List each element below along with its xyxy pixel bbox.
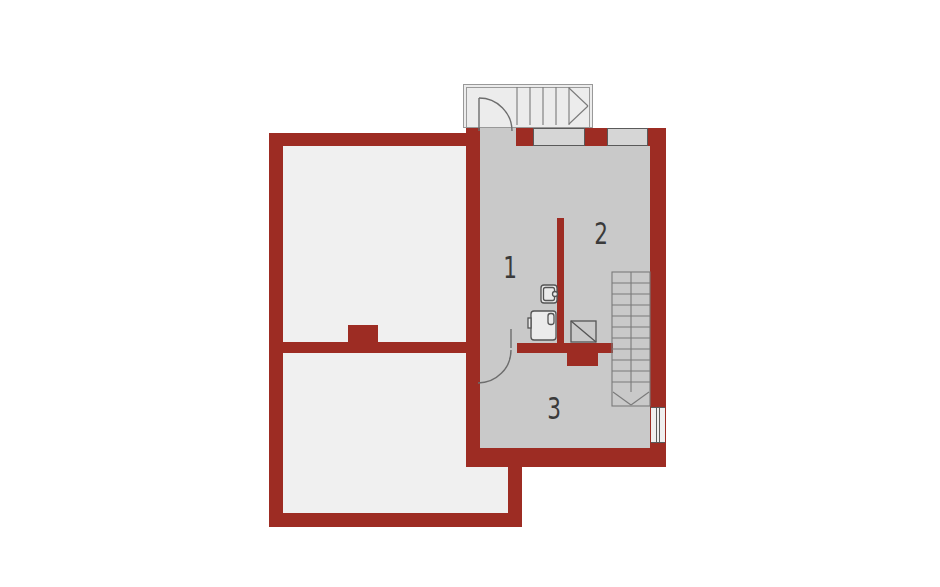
room-upper-left-floor xyxy=(283,146,466,342)
room-lower-left-floor-extension xyxy=(466,467,508,513)
wall-interior-horizontal xyxy=(517,343,613,353)
wall-interior-vertical xyxy=(557,218,564,345)
wall-top-pier-2 xyxy=(585,128,607,146)
wall-top-right-corner xyxy=(648,128,666,146)
room1-label: 1 xyxy=(501,253,518,283)
wall-lower-right-left-wing xyxy=(508,467,522,513)
wall-main-left xyxy=(466,128,480,448)
floor-plan-canvas: 1 2 3 xyxy=(0,0,940,587)
window-right-frame xyxy=(656,408,660,442)
window-top-1 xyxy=(533,128,585,146)
entry-landing xyxy=(463,84,593,128)
room2-label: 2 xyxy=(592,219,609,249)
entry-landing-railing xyxy=(466,87,590,127)
wall-right-outer xyxy=(650,146,666,448)
wall-left-outer xyxy=(269,133,283,527)
wall-top-left-wing xyxy=(269,133,466,146)
room-lower-left-floor xyxy=(283,353,466,513)
chimney-main xyxy=(567,353,598,366)
wall-middle-left-wing xyxy=(283,342,466,353)
wall-top-pier-1 xyxy=(516,128,533,146)
window-right xyxy=(651,407,665,443)
room3-label: 3 xyxy=(545,394,562,424)
wall-bottom-main xyxy=(466,448,666,467)
chimney-left-wing xyxy=(348,325,378,342)
wall-bottom-left-wing xyxy=(269,513,522,527)
main-section-floor xyxy=(480,128,650,448)
window-top-2 xyxy=(607,128,648,146)
